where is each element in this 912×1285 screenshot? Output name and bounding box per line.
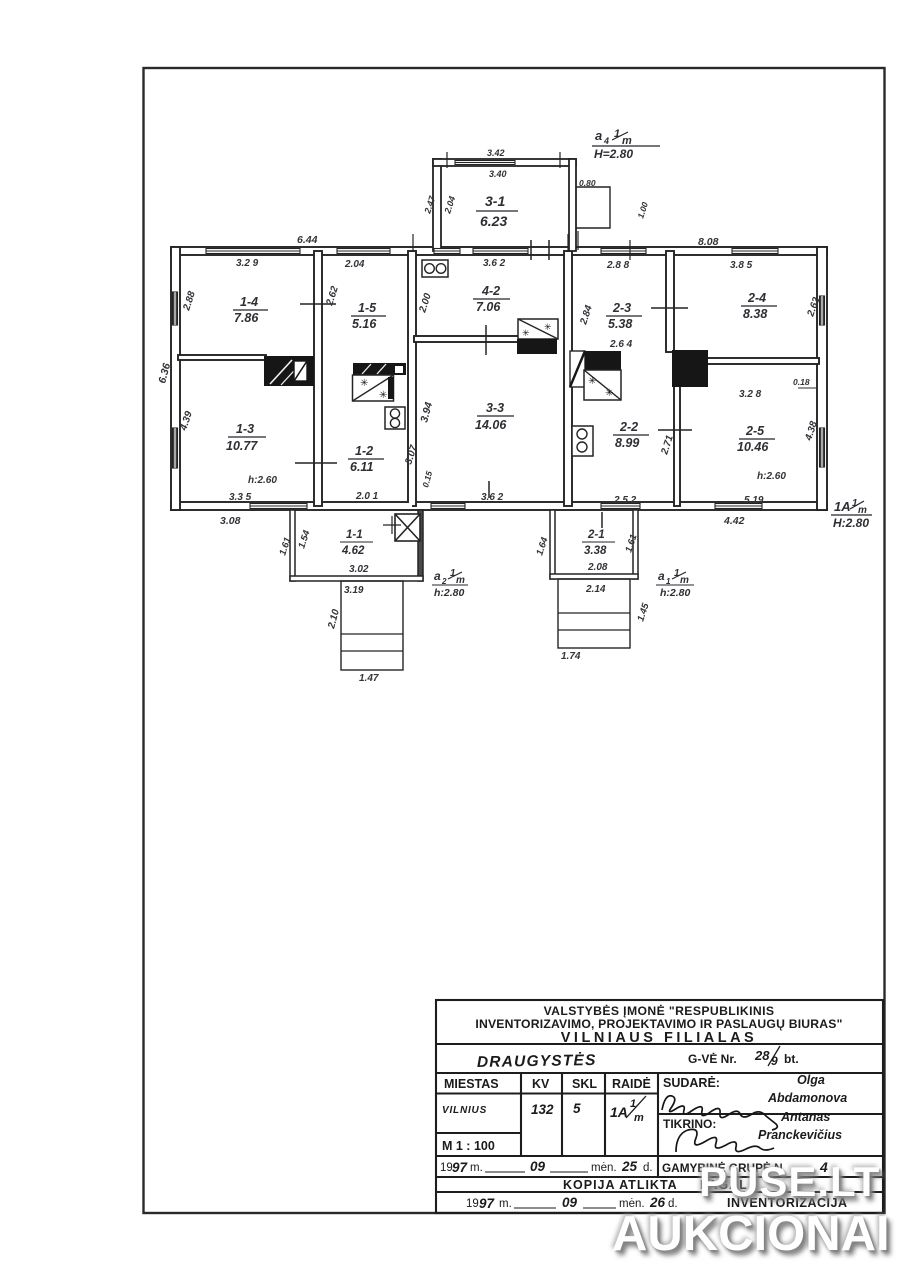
svg-text:1.45: 1.45 [635, 601, 651, 623]
svg-text:h:2.60: h:2.60 [757, 471, 786, 482]
svg-text:4: 4 [603, 136, 609, 146]
svg-text:3-1: 3-1 [485, 193, 505, 209]
svg-text:2.04: 2.04 [442, 195, 457, 216]
svg-text:m.: m. [499, 1198, 512, 1210]
svg-text:2.10: 2.10 [326, 608, 342, 631]
svg-text:a: a [658, 569, 665, 583]
svg-text:Antanas: Antanas [780, 1110, 830, 1124]
svg-text:1-1: 1-1 [346, 529, 363, 541]
svg-text:m: m [622, 135, 632, 147]
svg-text:97: 97 [452, 1160, 469, 1175]
svg-text:h:2.60: h:2.60 [248, 475, 277, 486]
svg-text:0.18: 0.18 [793, 377, 810, 387]
svg-text:1.47: 1.47 [359, 673, 379, 684]
svg-text:3.8 5: 3.8 5 [730, 260, 753, 271]
svg-text:3.94: 3.94 [418, 401, 435, 424]
svg-text:10.46: 10.46 [737, 440, 769, 454]
svg-text:✳: ✳ [544, 322, 552, 332]
svg-text:2.6 4: 2.6 4 [609, 339, 633, 350]
svg-text:5.16: 5.16 [352, 317, 377, 331]
svg-text:Abdamonova: Abdamonova [767, 1091, 847, 1105]
svg-text:RAIDĖ: RAIDĖ [612, 1076, 651, 1091]
svg-text:m: m [858, 505, 867, 516]
svg-text:a: a [434, 569, 441, 583]
svg-text:2.84: 2.84 [578, 304, 595, 327]
svg-text:10.77: 10.77 [226, 439, 258, 453]
svg-text:INVENTORIZAVIMO, PROJEKTAVIMO: INVENTORIZAVIMO, PROJEKTAVIMO IR PASLAUG… [475, 1017, 842, 1031]
svg-text:4.42: 4.42 [723, 515, 745, 527]
svg-text:2-1: 2-1 [587, 529, 605, 541]
svg-text:3.38: 3.38 [584, 545, 607, 557]
svg-text:0.15: 0.15 [420, 470, 434, 489]
svg-text:1.74: 1.74 [561, 651, 581, 662]
svg-text:VALSTYBĖS ĮMONĖ "RESPUBLIKINIS: VALSTYBĖS ĮMONĖ "RESPUBLIKINIS [544, 1003, 775, 1018]
svg-text:VILNIUS: VILNIUS [442, 1105, 487, 1116]
svg-text:1-5: 1-5 [358, 301, 377, 315]
svg-text:1.00: 1.00 [635, 201, 650, 220]
svg-text:97: 97 [479, 1196, 496, 1211]
svg-text:2-2: 2-2 [619, 420, 638, 434]
svg-text:✳: ✳ [522, 328, 530, 338]
svg-text:H:2.80: H:2.80 [833, 516, 869, 530]
svg-text:1-2: 1-2 [355, 444, 373, 458]
svg-text:3.2 8: 3.2 8 [739, 389, 762, 400]
svg-text:✳: ✳ [605, 388, 613, 399]
svg-text:4-2: 4-2 [481, 284, 500, 298]
svg-text:2-3: 2-3 [612, 301, 631, 315]
svg-text:bt.: bt. [784, 1052, 799, 1066]
svg-text:h:2.80: h:2.80 [434, 587, 465, 599]
svg-text:5.19: 5.19 [744, 495, 764, 506]
svg-text:2.8 8: 2.8 8 [606, 260, 630, 271]
svg-text:14.06: 14.06 [475, 418, 507, 432]
svg-text:m: m [634, 1112, 644, 1124]
svg-text:1-4: 1-4 [240, 295, 258, 309]
svg-text:3.6 2: 3.6 2 [481, 492, 504, 503]
svg-text:2-5: 2-5 [745, 424, 765, 438]
svg-text:6.44: 6.44 [297, 234, 318, 246]
svg-text:DRAUGYSTĖS: DRAUGYSTĖS [477, 1052, 597, 1071]
svg-text:2.0 1: 2.0 1 [355, 491, 379, 502]
svg-text:MIESTAS: MIESTAS [444, 1077, 499, 1091]
svg-text:H=2.80: H=2.80 [594, 147, 633, 161]
svg-text:Olga: Olga [797, 1073, 825, 1087]
svg-text:8.38: 8.38 [743, 307, 767, 321]
svg-text:3.07: 3.07 [403, 444, 420, 466]
svg-text:m.: m. [470, 1162, 483, 1174]
svg-text:SKL: SKL [572, 1077, 597, 1091]
svg-text:3.3 5: 3.3 5 [229, 492, 252, 503]
svg-text:3.08: 3.08 [220, 515, 241, 527]
svg-text:KV: KV [532, 1077, 550, 1091]
svg-text:6.11: 6.11 [350, 460, 373, 474]
svg-text:7.06: 7.06 [476, 300, 501, 314]
svg-text:h:2.80: h:2.80 [660, 587, 691, 599]
svg-text:mėn.: mėn. [591, 1162, 617, 1174]
svg-text:1A: 1A [610, 1104, 628, 1120]
svg-text:VILNIAUS FILIALAS: VILNIAUS FILIALAS [561, 1030, 757, 1046]
svg-text:2.88: 2.88 [181, 290, 198, 313]
svg-text:1.54: 1.54 [296, 528, 312, 550]
svg-text:3.02: 3.02 [349, 564, 369, 575]
svg-text:19: 19 [440, 1162, 453, 1174]
svg-text:1A: 1A [834, 499, 851, 514]
svg-text:m: m [456, 575, 465, 586]
svg-text:132: 132 [531, 1102, 554, 1117]
svg-text:3.2 9: 3.2 9 [236, 258, 259, 269]
svg-text:7.86: 7.86 [234, 311, 259, 325]
svg-text:6.23: 6.23 [480, 213, 507, 229]
svg-text:5.38: 5.38 [608, 317, 632, 331]
svg-text:M 1 : 100: M 1 : 100 [442, 1139, 495, 1153]
svg-text:19: 19 [466, 1198, 479, 1210]
svg-text:1.64: 1.64 [534, 535, 550, 557]
svg-text:3-3: 3-3 [486, 401, 504, 415]
svg-text:09: 09 [530, 1159, 546, 1174]
svg-text:KOPIJA ATLIKTA: KOPIJA ATLIKTA [563, 1178, 678, 1192]
svg-text:2.62: 2.62 [324, 285, 341, 308]
svg-text:✳: ✳ [360, 378, 368, 389]
svg-text:25: 25 [621, 1159, 638, 1174]
svg-text:✳: ✳ [588, 376, 596, 387]
svg-text:2.08: 2.08 [587, 562, 608, 573]
svg-text:28: 28 [754, 1048, 770, 1063]
svg-text:3.40: 3.40 [489, 169, 507, 179]
svg-text:2-4: 2-4 [747, 291, 766, 305]
svg-text:Pranckevičius: Pranckevičius [758, 1128, 842, 1142]
svg-text:4.62: 4.62 [341, 545, 365, 557]
svg-text:3.19: 3.19 [344, 585, 364, 596]
svg-text:5: 5 [573, 1101, 581, 1116]
svg-text:SUDARĖ:: SUDARĖ: [663, 1075, 720, 1090]
svg-text:8.08: 8.08 [698, 236, 719, 248]
svg-text:m: m [680, 575, 689, 586]
svg-text:2.04: 2.04 [344, 259, 365, 270]
svg-text:3.6 2: 3.6 2 [483, 258, 506, 269]
svg-text:2.14: 2.14 [585, 584, 606, 595]
svg-text:09: 09 [562, 1195, 578, 1210]
svg-text:0.80: 0.80 [579, 178, 596, 188]
svg-text:a: a [595, 128, 602, 143]
svg-text:✳: ✳ [379, 390, 387, 401]
svg-text:2.5 2: 2.5 2 [613, 495, 637, 506]
svg-text:8.99: 8.99 [615, 436, 639, 450]
svg-text:G-VĖ Nr.: G-VĖ Nr. [688, 1051, 737, 1066]
svg-text:3.42: 3.42 [487, 148, 505, 158]
svg-text:d.: d. [643, 1162, 653, 1174]
svg-text:1-3: 1-3 [236, 422, 254, 436]
svg-text:9: 9 [771, 1054, 778, 1068]
svg-text:2.00: 2.00 [417, 292, 434, 315]
